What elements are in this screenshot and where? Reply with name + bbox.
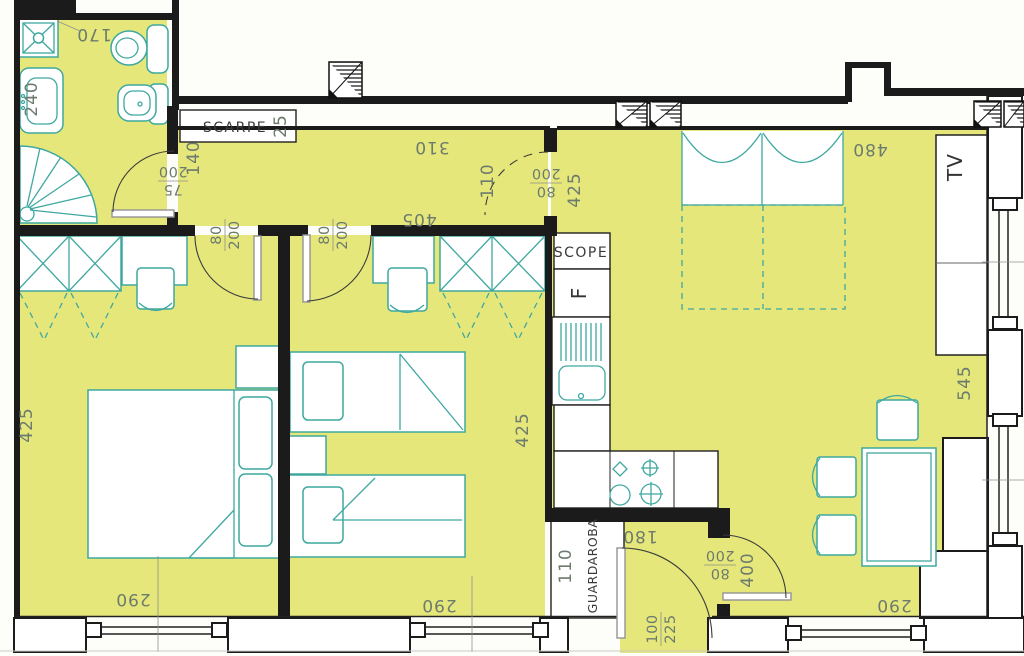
chair-icon	[877, 396, 918, 441]
svg-text:100: 100	[645, 614, 661, 643]
svg-text:200: 200	[227, 220, 243, 249]
svg-text:80: 80	[710, 565, 729, 581]
svg-text:75: 75	[163, 181, 182, 197]
label-guardaroba: GUARDAROBA	[585, 519, 600, 614]
dim-bedroom2-width: 425	[513, 412, 533, 447]
svg-text:200: 200	[531, 165, 560, 181]
dim-opening: 110	[478, 163, 498, 198]
dim-bedroom1-window: 290	[115, 589, 150, 609]
chair-icon	[813, 515, 857, 555]
column-pillar-icon	[650, 101, 681, 127]
svg-text:225: 225	[663, 614, 679, 643]
dim-sink: 240	[22, 81, 42, 116]
right-wall	[982, 96, 1024, 652]
window	[786, 626, 926, 640]
label-tv: TV	[943, 153, 967, 182]
label-fridge: F	[567, 287, 591, 300]
svg-text:80: 80	[209, 225, 225, 244]
nightstand-icon	[286, 436, 326, 474]
dim-bedroom2-window: 290	[421, 595, 456, 615]
dim-living-door-wall: 400	[738, 552, 758, 587]
svg-text:80: 80	[536, 183, 555, 199]
dim-guardaroba: 110	[556, 548, 576, 583]
column-pillar-icon	[616, 101, 647, 127]
floor-plan-scan: 170 240 SCARPE 25 140 75 200 310 405 110…	[0, 0, 1024, 656]
counter	[554, 405, 610, 451]
svg-text:80: 80	[317, 225, 333, 244]
bidet-icon	[118, 84, 168, 124]
column-pillar-icon	[974, 101, 1001, 127]
dim-living-window: 290	[876, 595, 911, 615]
floor-plan-drawing: 170 240 SCARPE 25 140 75 200 310 405 110…	[0, 0, 1024, 656]
dining-table-icon	[862, 448, 936, 566]
svg-text:200: 200	[705, 547, 734, 563]
dim-living-depth: 545	[955, 365, 975, 400]
svg-text:200: 200	[158, 163, 187, 179]
single-bed-icon	[290, 352, 465, 432]
label-scope: SCOPE	[554, 245, 608, 261]
chair-icon	[813, 457, 857, 497]
dim-hall-length: 310	[414, 137, 449, 157]
sink-unit-icon	[552, 317, 610, 405]
double-bed-icon	[88, 390, 279, 558]
sofa-icon	[682, 131, 843, 205]
dim-bedroom2-top: 405	[401, 209, 436, 229]
nightstand-icon	[236, 346, 279, 388]
svg-text:200: 200	[335, 220, 351, 249]
dim-scarpe: 25	[271, 114, 291, 138]
column-pillar-icon	[1004, 101, 1024, 127]
cooktop-icon	[554, 451, 718, 508]
dim-entry-width: 180	[622, 526, 657, 546]
single-bed-icon	[285, 475, 465, 557]
label-scarpe: SCARPE	[203, 120, 267, 136]
dim-shower: 170	[76, 24, 111, 44]
dim-living-edge: 425	[565, 172, 585, 207]
dim-sofa: 480	[852, 139, 887, 159]
column-pillar-icon	[329, 62, 362, 98]
dim-bedroom1-width: 425	[17, 407, 37, 442]
